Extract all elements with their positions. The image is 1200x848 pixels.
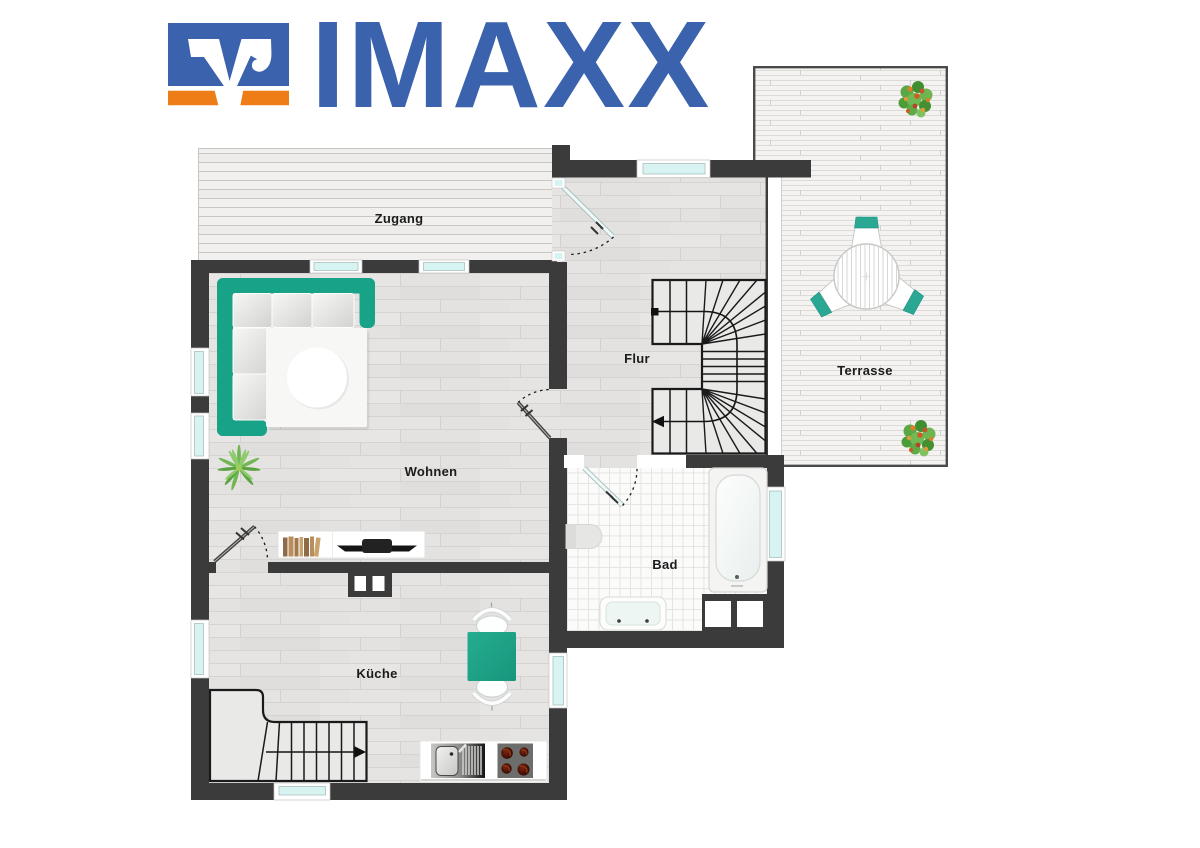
- svg-text:Bad: Bad: [652, 557, 677, 572]
- svg-text:Terrasse: Terrasse: [837, 363, 893, 378]
- svg-text:IMAXX: IMAXX: [311, 0, 712, 134]
- svg-text:Wohnen: Wohnen: [405, 464, 458, 479]
- svg-text:Zugang: Zugang: [375, 211, 424, 226]
- svg-text:Flur: Flur: [624, 351, 650, 366]
- svg-text:Küche: Küche: [356, 666, 397, 681]
